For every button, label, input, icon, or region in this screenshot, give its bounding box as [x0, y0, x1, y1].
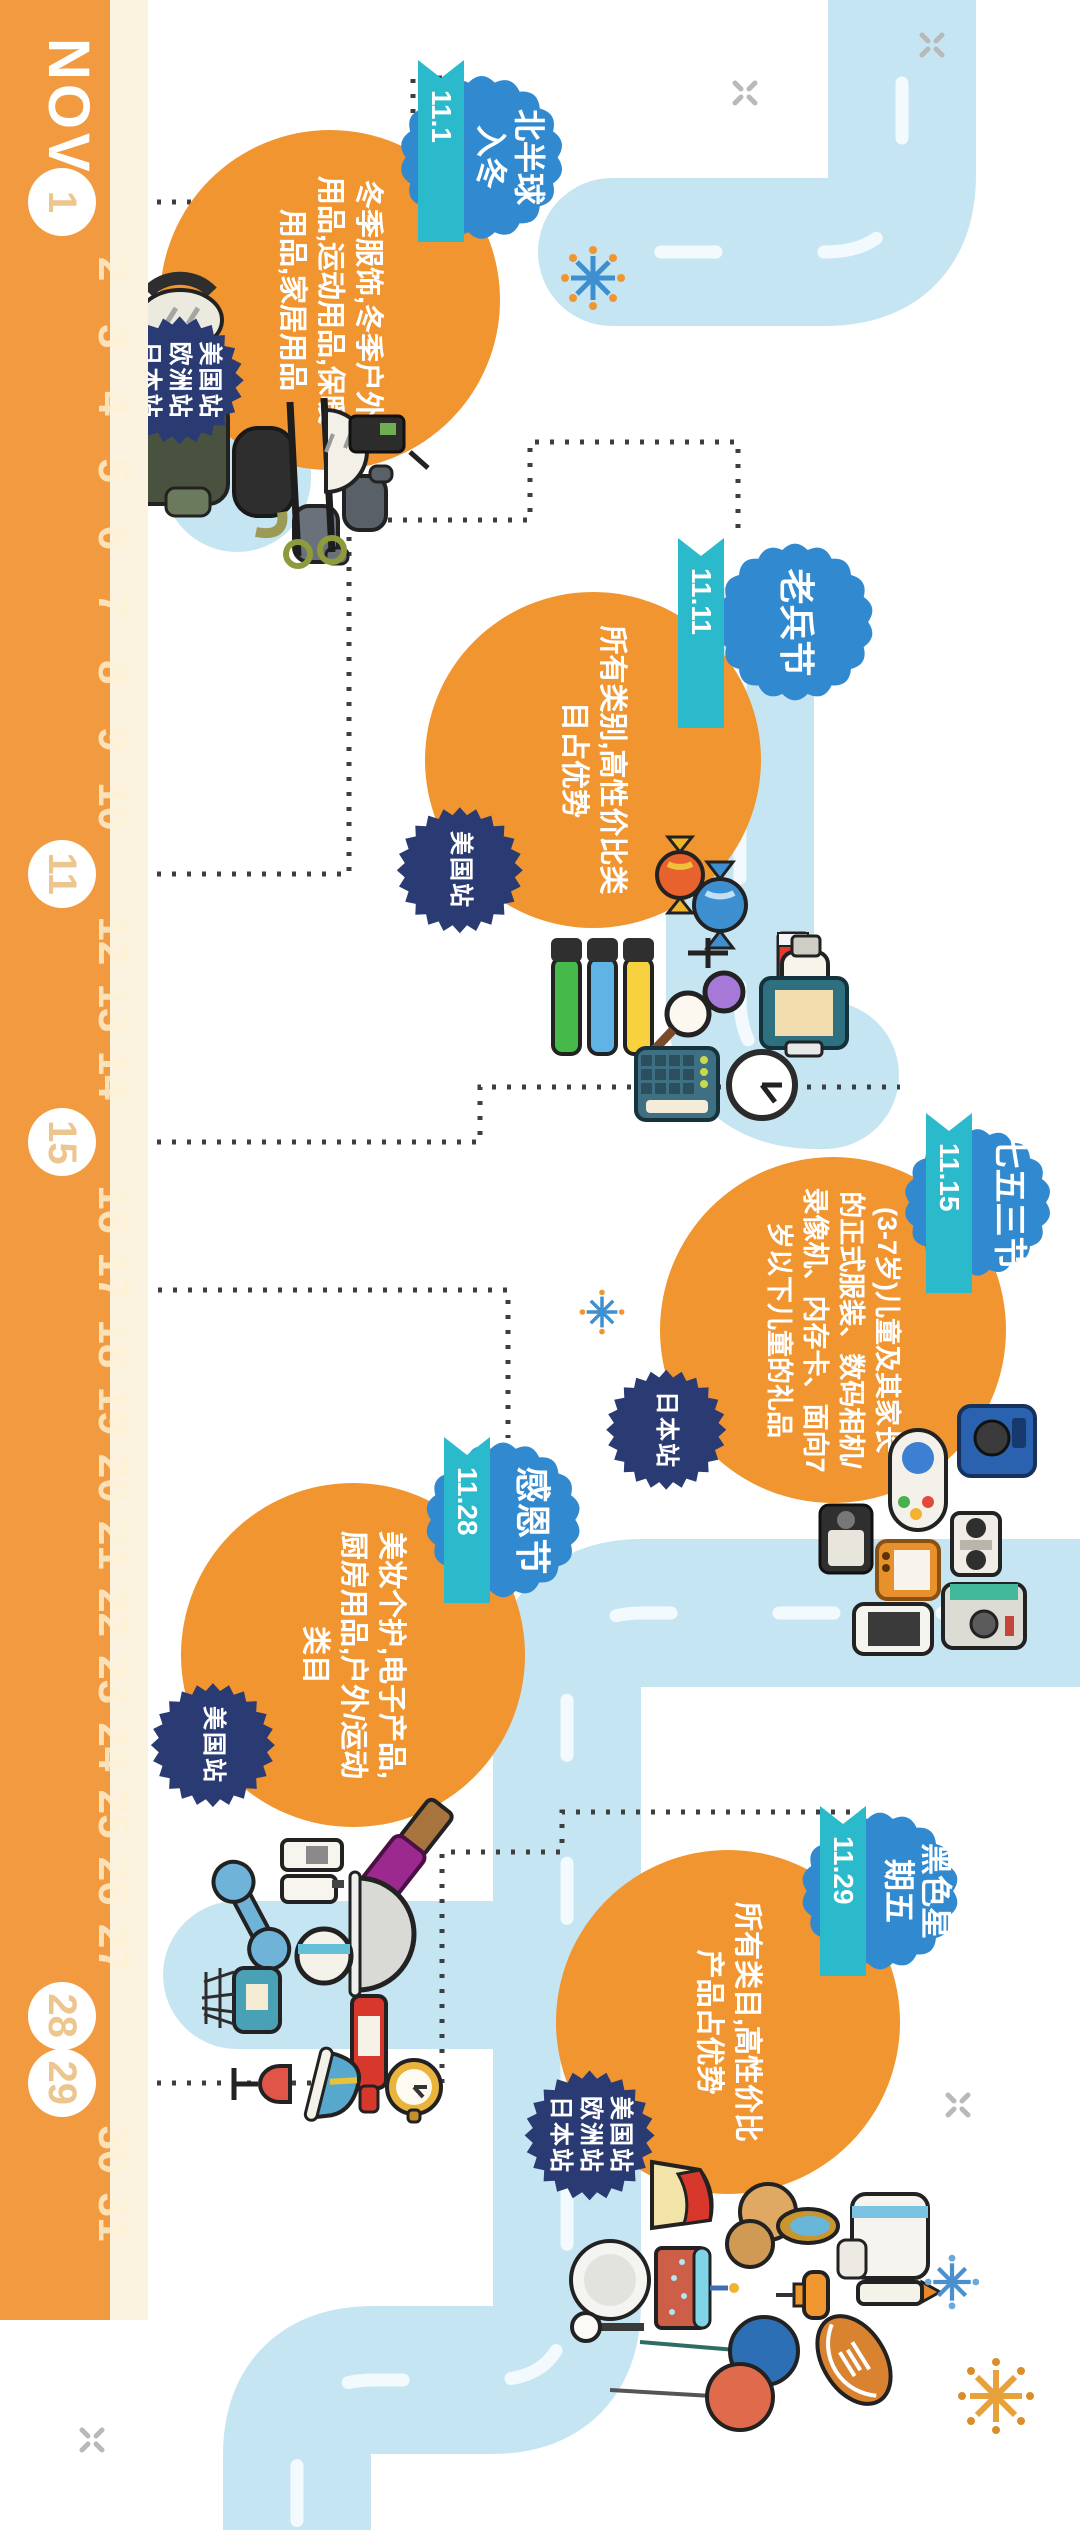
- event-date-ribbon-black-friday: 11.29: [820, 1806, 866, 1976]
- event-name-shichigosan: 七五三节: [990, 1125, 1028, 1280]
- station-label: 美国站: [198, 1706, 228, 1784]
- clipboard-icon: [761, 978, 847, 1056]
- mixing-bowl-icon: [350, 1872, 414, 1996]
- american-football-icon: [802, 2303, 905, 2417]
- birthday-cake-icon: [656, 2248, 739, 2328]
- video-camera-icon: [820, 1505, 872, 1573]
- event-name-thanksgiving: 感恩节: [512, 1448, 552, 1593]
- calendar-day: 4: [88, 371, 138, 437]
- event-name-line: 期五: [880, 1818, 917, 1964]
- calendar-day: 13: [88, 975, 138, 1041]
- calendar-day: 24: [88, 1714, 138, 1780]
- station-label: 美国站: [195, 342, 225, 420]
- calendar-day: 10: [88, 774, 138, 840]
- event-name-line: 北半球: [510, 92, 548, 222]
- station-labels-veterans-day: 美国站: [389, 799, 531, 941]
- calculator-icon: [636, 1048, 718, 1120]
- calendar-day: 21: [88, 1512, 138, 1578]
- event-date: 11.11: [678, 538, 724, 728]
- towel-icon: [838, 2194, 928, 2278]
- infographic-november-calendar: 冬季服饰,冬季户外用品,运动用品,保暖用品,家居用品 所有类别,高性价比类目占优…: [0, 0, 1080, 2530]
- event-name-line: 七五三节: [990, 1125, 1028, 1280]
- calendar-day: 3: [88, 303, 138, 369]
- firework-icon: [580, 1290, 625, 1335]
- event-name-line: 黑色星: [917, 1818, 954, 1964]
- wine-bottle-icon: [352, 1996, 386, 2112]
- event-date: 11.1: [418, 60, 464, 242]
- instant-camera-icon: [943, 1584, 1025, 1648]
- push-pin-icon: [776, 2272, 828, 2318]
- station-labels-shichigosan: 日本站: [598, 1362, 734, 1498]
- calendar-day: 17: [88, 1244, 138, 1310]
- station-label: 欧洲站: [575, 2096, 605, 2174]
- event-date: 11.29: [820, 1806, 866, 1976]
- calendar-day-highlighted: 15: [28, 1108, 96, 1176]
- calendar-day: 7: [88, 572, 138, 638]
- event-name-black-friday: 黑色星期五: [880, 1818, 954, 1964]
- event-name-winter: 北半球入冬: [472, 92, 548, 222]
- station-label: 欧洲站: [165, 342, 195, 420]
- highlighter-markers-icon: [551, 938, 654, 1054]
- calendar-day: 18: [88, 1311, 138, 1377]
- handheld-console-icon: [877, 1541, 939, 1599]
- event-name-veterans-day: 老兵节: [776, 550, 816, 695]
- event-date-ribbon-shichigosan: 11.15: [926, 1113, 972, 1293]
- dumbbell-icon: [206, 1855, 296, 1976]
- calendar-day: 14: [88, 1042, 138, 1108]
- station-labels-black-friday: 美国站欧洲站日本站: [517, 2062, 663, 2208]
- event-date: 11.28: [444, 1437, 490, 1603]
- firework-icon: [561, 246, 625, 310]
- calendar-day-highlighted: 29: [28, 2049, 96, 2117]
- calendar-day: 26: [88, 1848, 138, 1914]
- station-labels-thanksgiving: 美国站: [143, 1675, 283, 1815]
- event-date-ribbon-thanksgiving: 11.28: [444, 1437, 490, 1603]
- calendar-day-highlighted: 11: [28, 840, 96, 908]
- magnifier-icon: [654, 938, 743, 1050]
- game-controller-icon: [890, 1430, 946, 1530]
- station-label: 美国站: [445, 831, 475, 909]
- hair-dryer-icon: [297, 1929, 351, 1983]
- month-label: NOV: [35, 38, 102, 176]
- hand-mirror-icon: [778, 2209, 838, 2243]
- calendar-day: 23: [88, 1647, 138, 1713]
- event-name-line: 老兵节: [776, 550, 816, 695]
- calendar-day-highlighted: 1: [28, 168, 96, 236]
- event-badge-shichigosan: [896, 1121, 1059, 1284]
- firework-icon: [925, 2255, 979, 2309]
- calendar-day: 27: [88, 1915, 138, 1981]
- calendar-day: 20: [88, 1445, 138, 1511]
- alarm-clock-icon: [729, 1052, 795, 1118]
- calendar-day: 12: [88, 908, 138, 974]
- cosmetic-bottles-icon: [282, 1840, 344, 1902]
- wine-glass-icon: [234, 2066, 290, 2102]
- shichigosan-icons: [820, 1406, 1035, 1654]
- calendar-day: 22: [88, 1580, 138, 1646]
- calendar-day: 8: [88, 639, 138, 705]
- event-date: 11.15: [926, 1113, 972, 1293]
- event-date-ribbon-winter: 11.1: [418, 60, 464, 242]
- basketball-hoop-icon: [202, 1968, 280, 2032]
- station-label: 日本站: [651, 1391, 681, 1469]
- calendar-day: 31: [88, 2184, 138, 2250]
- station-label: 美国站: [605, 2096, 635, 2174]
- calendar-day: 16: [88, 1177, 138, 1243]
- balloons-icon: [610, 2317, 798, 2430]
- event-date-ribbon-veterans-day: 11.11: [678, 538, 724, 728]
- calendar-day: 9: [88, 706, 138, 772]
- event-name-line: 入冬: [472, 92, 510, 222]
- calendar-day: 25: [88, 1781, 138, 1847]
- calendar-day: 6: [88, 505, 138, 571]
- calendar-day-highlighted: 28: [28, 1982, 96, 2050]
- plate-icon: [571, 2241, 649, 2319]
- pocket-watch-icon: [387, 2060, 441, 2122]
- rotated-landscape-canvas: 冬季服饰,冬季户外用品,运动用品,保暖用品,家居用品 所有类别,高性价比类目占优…: [0, 0, 1080, 2530]
- station-label: 日本站: [545, 2096, 575, 2174]
- digital-camera-icon: [959, 1406, 1035, 1476]
- calendar-day: 5: [88, 438, 138, 504]
- calendar-day: 2: [88, 236, 138, 302]
- veterans-day-icons: CREAM: [551, 837, 847, 1120]
- event-badge-thanksgiving: [417, 1434, 589, 1606]
- calendar-day: 19: [88, 1378, 138, 1444]
- calendar-day: 30: [88, 2117, 138, 2183]
- thanksgiving-icons: [202, 1795, 457, 2129]
- boombox-icon: [952, 1513, 1000, 1575]
- event-name-line: 感恩节: [512, 1448, 552, 1593]
- firework-icon: [958, 2358, 1034, 2434]
- smartphone-icon: [854, 1604, 932, 1654]
